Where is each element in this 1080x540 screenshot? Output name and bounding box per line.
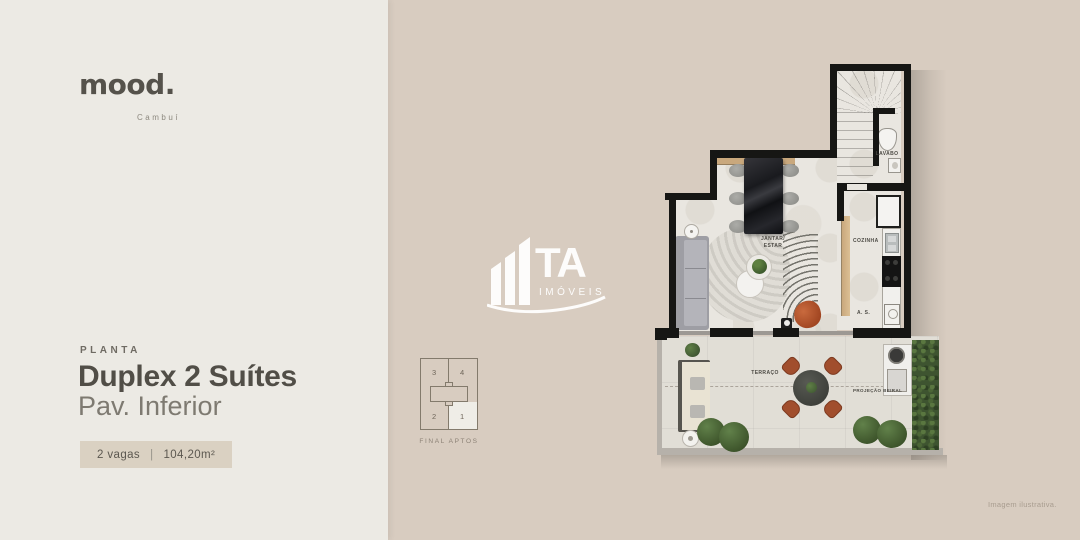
wall [655,328,667,340]
wall [904,64,911,338]
building-shadow-bottom [661,455,947,469]
disclaimer-text: Imagem ilustrativa. [988,500,1057,509]
dining-label-line2: ESTAR [764,243,783,249]
floor-lamp-icon [684,224,699,239]
wall [710,328,753,337]
plant-bush [877,420,907,448]
wall [830,64,911,71]
keyplan-unit-1: 1 [460,412,464,421]
door-opening [847,184,867,190]
keyplan-caption: FINAL APTOS [416,438,482,445]
wall [853,328,911,338]
wall [665,328,679,338]
wall [710,150,837,158]
badge-area: 104,20m² [163,449,215,461]
plant-bush [719,422,749,452]
stove-icon [882,256,901,287]
dining-chair [781,164,799,177]
left-panel: mood. Cambuí PLANTA Duplex 2 Suítes Pav.… [0,0,388,540]
keyplan-unit-3: 3 [432,368,436,377]
watermark-word: IMÓVEIS [539,287,605,298]
keyplan-unit-4: 4 [460,368,464,377]
keyplan-divider [448,402,449,430]
wall [837,183,844,221]
plan-eyebrow: PLANTA [80,345,141,356]
keyplan-diagram: 3 4 2 1 FINAL APTOS [416,358,482,450]
room-label-lavabo: LAVABO [871,151,903,158]
washing-machine-icon [884,304,900,325]
dining-table [744,158,783,234]
ta-imoveis-watermark: TA IMÓVEIS [487,231,609,315]
badge-parking: 2 vagas [97,449,140,461]
wall [773,328,799,337]
room-label-service: A. S. [857,310,879,317]
fridge-icon [876,195,901,228]
plant-table [746,254,772,280]
wall [669,193,676,338]
room-label-kitchen: COZINHA [853,238,893,245]
badge-separator: | [150,449,153,461]
plan-info-badge: 2 vagas | 104,20m² [80,441,232,468]
dining-chair [781,192,799,205]
plan-title: Duplex 2 Suítes [78,360,297,394]
sofa [675,236,709,330]
wall [830,64,837,158]
terrace-table [793,370,829,406]
plan-subtitle: Pav. Inferior [78,391,222,422]
terrace-parapet-bottom [657,448,943,455]
watermark-initials: TA [535,239,586,287]
keyplan-core [430,386,468,402]
floorplan: JANTAR/ ESTAR COZINHA A. S. LAVABO TERRA… [655,64,967,488]
stairs-straight [837,112,873,183]
room-label-terrace: TERRAÇO [745,370,785,377]
grill-icon [888,347,905,364]
room-label-projection: PROJEÇÃO BEIRAL [853,388,909,395]
terrace-parapet-left [657,336,662,455]
keyplan-unit-2: 2 [432,412,436,421]
sink-icon [888,158,901,173]
potted-plant-icon [685,343,700,357]
brand-city-label: Cambuí [137,113,180,122]
room-label-dining: JANTAR/ ESTAR [750,236,796,249]
wood-counter-divider [841,216,850,316]
vertical-garden-hedge [912,340,939,450]
dining-label-line1: JANTAR/ [761,236,785,242]
brand-logo: mood. [79,68,175,101]
